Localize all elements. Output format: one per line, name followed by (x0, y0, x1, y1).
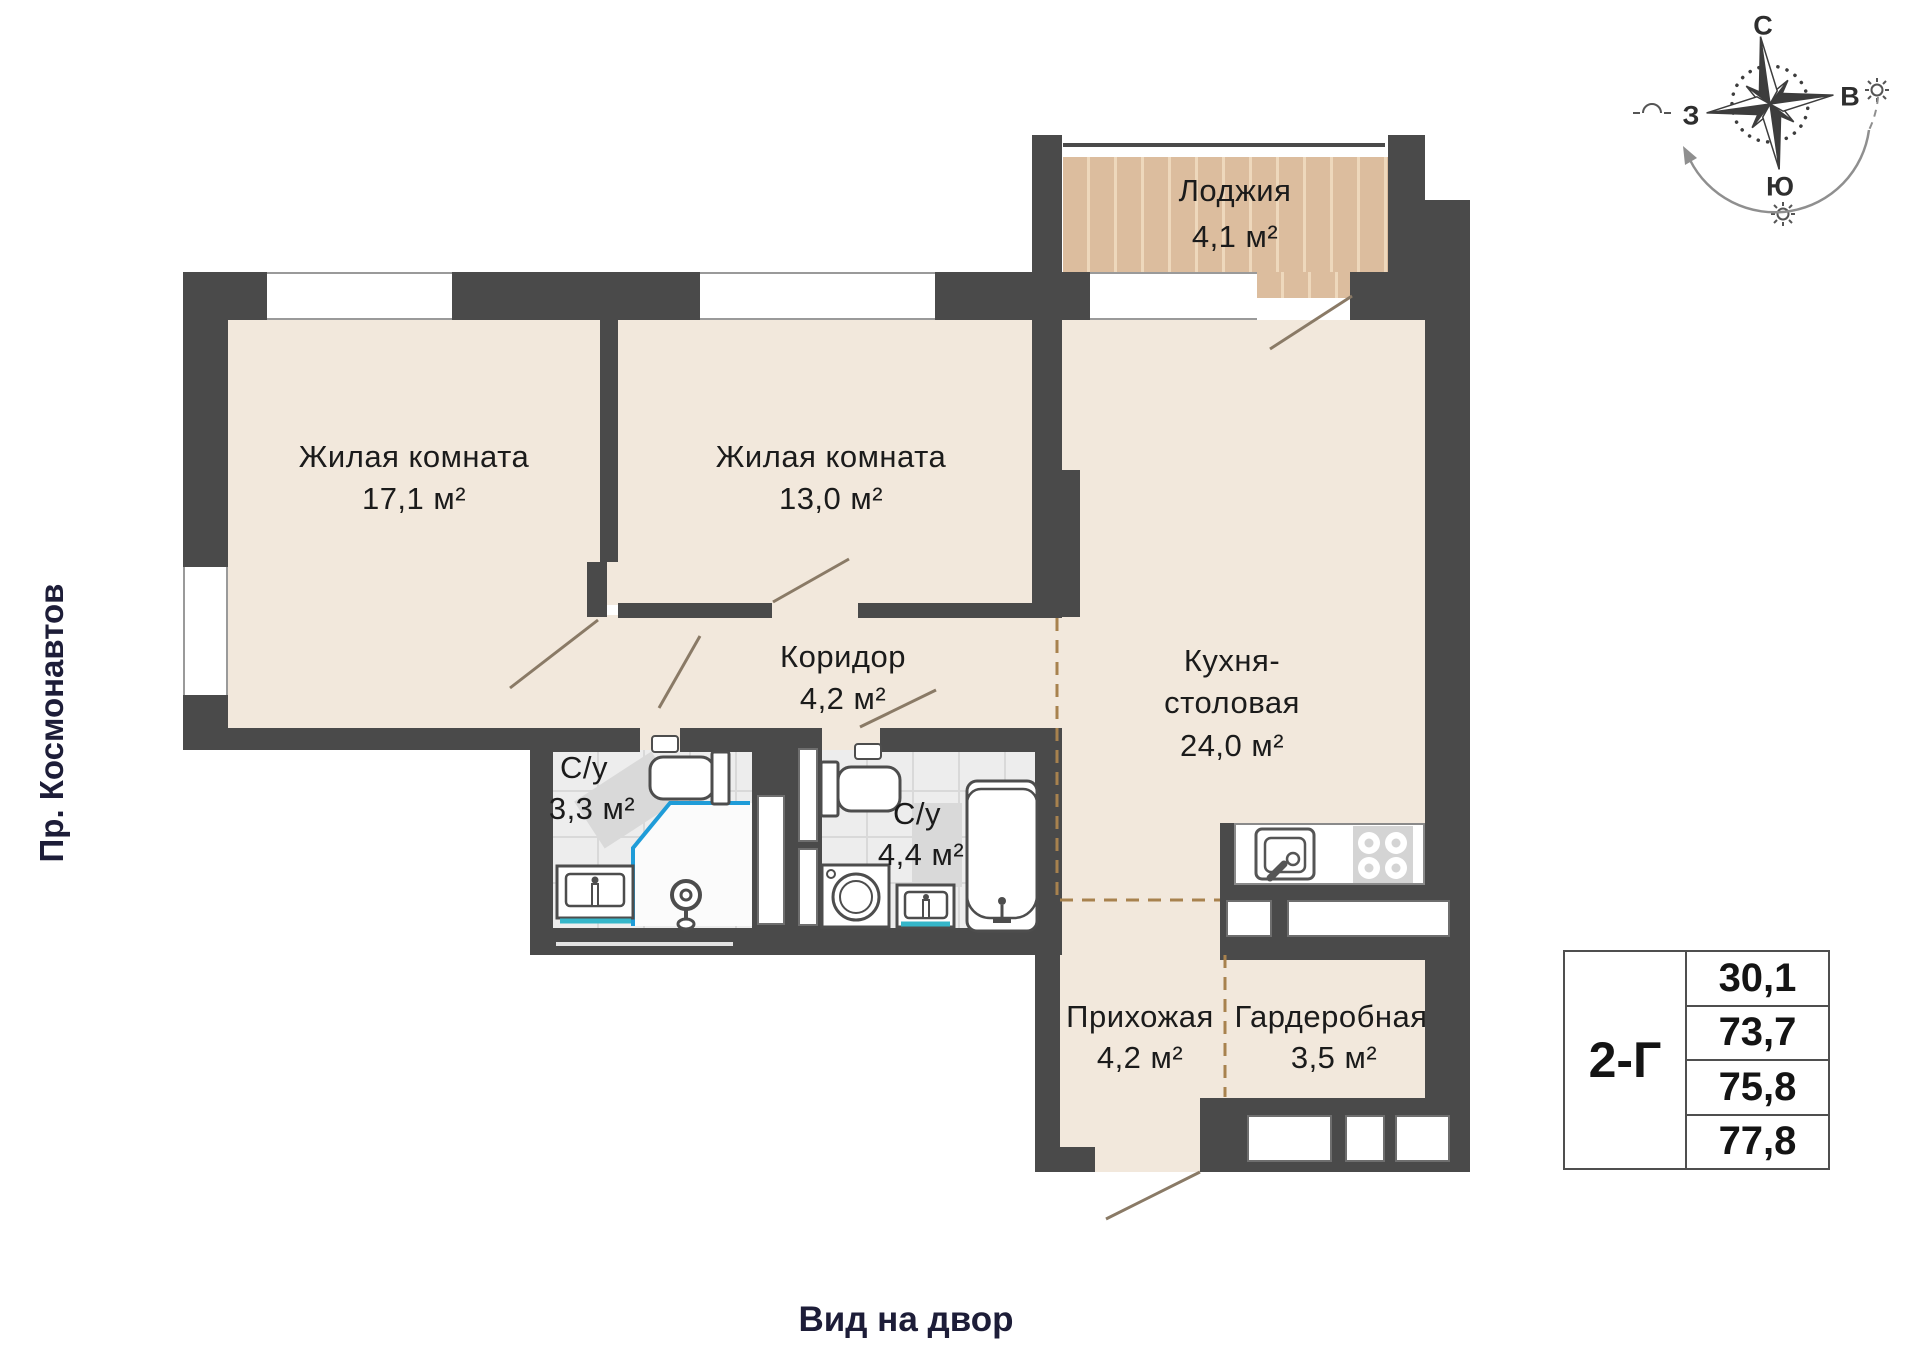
room-label-corridor-area: 4,2 м² (800, 681, 886, 717)
room-label-hallway-name: Прихожая (1066, 999, 1214, 1035)
room-label-bathroom1-area: 3,3 м² (549, 791, 635, 827)
wall-segment (1062, 470, 1080, 617)
compass-north-label: С (1753, 11, 1773, 42)
info-table-value: 77,8 (1687, 1116, 1828, 1169)
wall-segment (618, 603, 772, 618)
room-label-bathroom1-name: С/у (560, 750, 608, 786)
wall-segment (1388, 135, 1425, 320)
room-label-kitchen-name-line2: столовая (1164, 685, 1300, 721)
room-label-loggia-area: 4,1 м² (1192, 219, 1278, 255)
wall-segment (935, 272, 1090, 320)
compass-east-label: В (1840, 82, 1860, 113)
apartment-info-table: 2-Г 30,1 73,7 75,8 77,8 (1563, 950, 1830, 1170)
wall-segment (183, 272, 228, 567)
compass-rose-icon (1633, 28, 1889, 226)
info-table-value: 75,8 (1687, 1061, 1828, 1116)
info-table-value: 30,1 (1687, 952, 1828, 1007)
loggia-glazing-band (1063, 147, 1385, 157)
apartment-unit-code: 2-Г (1565, 952, 1687, 1168)
wall-niche (1345, 1115, 1385, 1162)
wall-segment (530, 728, 553, 955)
wall-segment (1350, 272, 1388, 320)
wall-niche (1247, 1115, 1332, 1162)
wall-segment (600, 320, 618, 562)
room-label-living2-area: 13,0 м² (779, 481, 883, 517)
sun-icon-south (1771, 202, 1795, 226)
room-label-hallway-area: 4,2 м² (1097, 1040, 1183, 1076)
street-label: Пр. Космонавтов (33, 584, 71, 863)
wall-segment (1425, 200, 1470, 1098)
wall-segment (1032, 135, 1062, 617)
courtyard-label: Вид на двор (798, 1300, 1013, 1340)
room-label-bathroom2-name: С/у (893, 796, 941, 832)
room-label-living1-area: 17,1 м² (362, 481, 466, 517)
room-label-wardrobe-area: 3,5 м² (1291, 1040, 1377, 1076)
room-label-kitchen-name-line1: Кухня- (1184, 643, 1280, 679)
info-table-value: 73,7 (1687, 1007, 1828, 1062)
wall-niche (1287, 900, 1450, 937)
sunrise-icon-west (1633, 104, 1671, 113)
wall-counter-stub (1220, 823, 1234, 885)
floor-bath1-door-gap (640, 726, 680, 752)
room-label-living1-name: Жилая комната (299, 439, 529, 475)
sun-icon-east (1865, 78, 1889, 102)
wall-segment (530, 928, 1062, 955)
wall-segment (1035, 728, 1062, 955)
floor-loggia-door-gap (1257, 272, 1350, 298)
room-label-kitchen-area: 24,0 м² (1180, 728, 1284, 764)
wall-niche (1226, 900, 1272, 937)
wall-niche (798, 748, 818, 842)
compass-west-label: З (1683, 101, 1700, 132)
window-kitchen-loggia (1090, 272, 1257, 320)
wall-niche (798, 848, 818, 926)
room-label-wardrobe-name: Гардеробная (1234, 999, 1427, 1035)
window (183, 567, 228, 695)
room-label-bathroom2-area: 4,4 м² (878, 837, 964, 873)
wall-segment (1035, 955, 1060, 1147)
floor-bath2-door-gap (820, 726, 880, 752)
room-label-corridor-name: Коридор (780, 639, 906, 675)
window (700, 272, 935, 320)
wall-niche (1395, 1115, 1450, 1162)
floor-plan-canvas: Жилая комната 17,1 м² Жилая комната 13,0… (0, 0, 1920, 1358)
wall-segment (587, 562, 607, 617)
wall-segment (1035, 1147, 1095, 1172)
window (267, 272, 452, 320)
floor-living-room-1 (228, 320, 600, 730)
kitchen-counter (1234, 823, 1425, 885)
wall-segment (452, 272, 700, 320)
compass-south-label: Ю (1766, 172, 1794, 203)
room-label-loggia-name: Лоджия (1179, 173, 1292, 209)
wall-niche (757, 795, 785, 925)
room-label-living2-name: Жилая комната (716, 439, 946, 475)
